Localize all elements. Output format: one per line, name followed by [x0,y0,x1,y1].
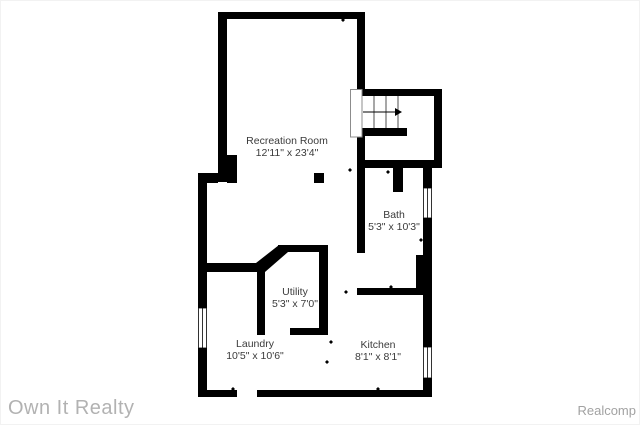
wall-segment [198,348,207,397]
room-dimensions: 12'11" x 23'4" [246,147,328,159]
agency-watermark: Own It Realty [8,397,135,419]
wall-segment [362,89,442,96]
room-label-utility: Utility 5'3" x 7'0" [272,286,318,311]
door-marker [344,290,348,294]
window-icon [424,347,432,378]
wall-segment [198,263,262,272]
room-name: Laundry [226,338,284,350]
wall-segment [357,288,432,295]
room-name: Recreation Room [246,135,328,147]
wall-segment [434,89,442,168]
wall-segment [257,272,265,335]
room-dimensions: 8'1" x 8'1" [355,351,401,363]
wall-segment [218,12,365,19]
stair-landing [351,90,363,138]
window-icon [199,308,207,348]
wall-segment [393,168,403,192]
support-post [314,173,324,183]
wall-segment [357,12,365,93]
wall-segment [357,160,442,168]
wall-diagonal-segment [256,245,288,272]
provider-watermark: Realcomp [577,403,636,418]
wall-segment [290,328,328,335]
door-marker [386,170,390,174]
room-name: Bath [368,209,420,221]
wall-segment [257,390,432,397]
room-dimensions: 5'3" x 10'3" [368,221,420,233]
wall-segment [227,155,237,183]
room-label-bath: Bath 5'3" x 10'3" [368,209,420,234]
wall-segment [198,390,237,397]
wall-segment [198,173,218,183]
door-marker [329,340,333,344]
door-markers [202,18,423,391]
door-marker [419,238,423,242]
floor-plan-canvas [0,0,640,425]
wall-segment [423,168,432,188]
wall-segment [423,295,432,347]
door-marker [348,168,352,172]
wall-segment [198,182,207,308]
door-marker [325,360,329,364]
floor-plan-screenshot: Recreation Room 12'11" x 23'4" Bath 5'3"… [0,0,640,425]
room-dimensions: 5'3" x 7'0" [272,298,318,310]
room-dimensions: 10'5" x 10'6" [226,350,284,362]
room-label-recreation-room: Recreation Room 12'11" x 23'4" [246,135,328,160]
room-name: Utility [272,286,318,298]
stair-direction-arrow-icon [363,108,402,116]
room-label-kitchen: Kitchen 8'1" x 8'1" [355,339,401,364]
wall-segment [423,218,432,257]
room-label-laundry: Laundry 10'5" x 10'6" [226,338,284,363]
window-icon [424,188,432,218]
wall-segment [319,245,328,335]
wall-segment [357,168,365,253]
room-name: Kitchen [355,339,401,351]
wall-segment [218,12,227,182]
